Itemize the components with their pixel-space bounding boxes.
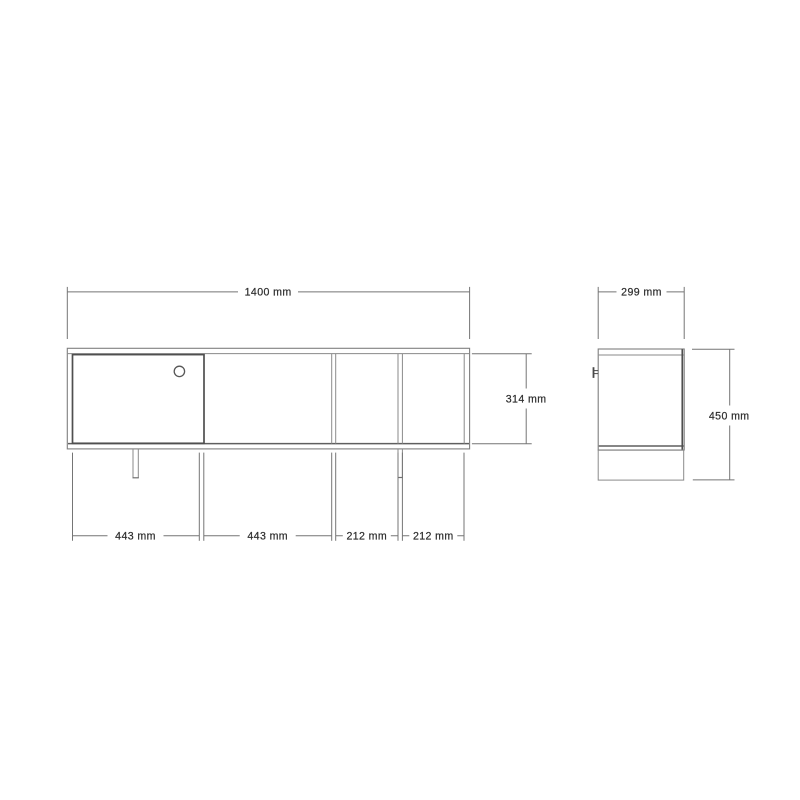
svg-text:212 mm: 212 mm <box>413 531 454 543</box>
svg-text:443 mm: 443 mm <box>115 531 156 543</box>
svg-text:314 mm: 314 mm <box>506 394 547 406</box>
svg-text:299 mm: 299 mm <box>621 287 662 299</box>
svg-text:450 mm: 450 mm <box>709 410 750 422</box>
svg-text:443 mm: 443 mm <box>247 531 288 543</box>
svg-text:1400 mm: 1400 mm <box>245 287 292 299</box>
svg-text:212 mm: 212 mm <box>346 531 387 543</box>
